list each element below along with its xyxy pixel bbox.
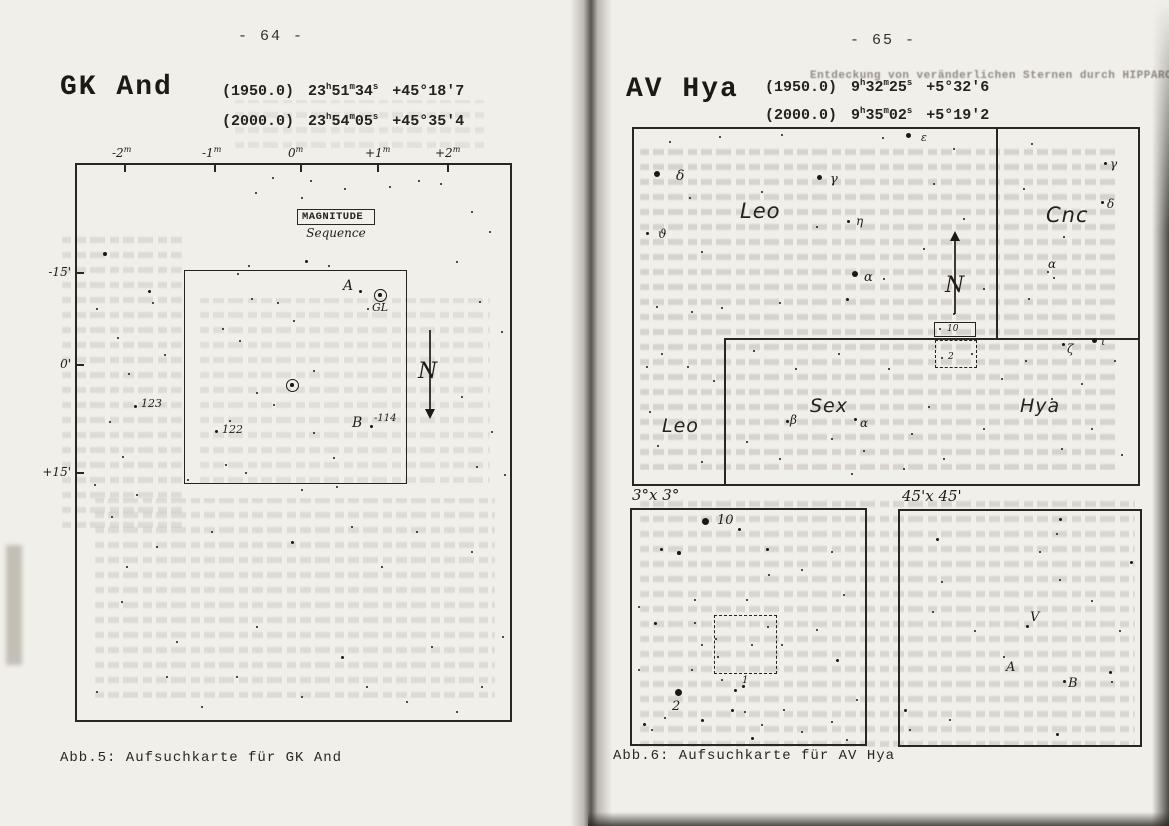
star-dot: [1056, 533, 1058, 535]
star-label: B: [1068, 677, 1078, 690]
star-dot: [1028, 298, 1030, 300]
star-dot: [128, 373, 130, 375]
star-dot: [148, 290, 151, 293]
star-dot: [936, 538, 939, 541]
star-dot: [1109, 671, 1112, 674]
star-dot: [156, 546, 158, 548]
star-dot: [943, 458, 945, 460]
star-dot: [801, 731, 803, 733]
star-dot: [694, 622, 696, 624]
star-dot: [109, 421, 111, 423]
star-label: 10: [717, 514, 734, 527]
star-dot: [301, 197, 303, 199]
star-dot: [738, 528, 741, 531]
star-dot: [225, 464, 227, 466]
star-dot: [1061, 448, 1063, 450]
star-dot: [691, 311, 693, 313]
gk-and-coords-2000: (2000.0)23h54m05s+45°35'4: [222, 112, 464, 130]
av-hya-finder-chart-wide: LeoCncSexHyaLeoδγηϑαεγδαζιβα102N: [632, 127, 1140, 486]
scan-edge-right: [1152, 0, 1169, 826]
star-dot: [713, 380, 715, 382]
star-dot: [229, 420, 231, 422]
star-dot: [746, 599, 748, 601]
magnitude-sequence-legend: MAGNITUDESequence: [297, 209, 375, 240]
star-dot: [418, 180, 420, 182]
star-dot: [1091, 600, 1093, 602]
star-label: δ: [676, 169, 684, 183]
star-dot: [256, 626, 258, 628]
epoch-label: (1950.0): [765, 79, 837, 96]
star-dot: [838, 353, 840, 355]
right-page-number: - 65 -: [850, 32, 916, 49]
av-hya-finder-chart-45min: VAB45'x 45': [898, 509, 1142, 747]
star-dot: [291, 541, 294, 544]
axis-tick: [214, 165, 216, 172]
star-dot: [136, 494, 138, 496]
star-dot: [744, 711, 746, 713]
star-dot: [471, 551, 473, 553]
star-label: 10: [947, 325, 958, 334]
star-dot: [1051, 398, 1053, 400]
legend-magnitude-box: MAGNITUDE: [297, 209, 375, 225]
star-dot: [646, 366, 648, 368]
star-label: ζ: [1067, 343, 1074, 355]
star-dot: [166, 676, 168, 678]
star-dot: [761, 191, 763, 193]
star-label: γ: [830, 173, 838, 186]
star-dot: [481, 686, 483, 688]
star-dot: [836, 659, 839, 662]
star-label: 122: [222, 424, 243, 435]
north-label: N: [418, 361, 437, 383]
star-dot: [1101, 201, 1104, 204]
star-dot: [1023, 188, 1025, 190]
star-dot: [272, 177, 274, 179]
star-dot: [715, 638, 717, 640]
star-dot: [96, 691, 98, 693]
star-dot: [846, 739, 848, 741]
ra-value: 9h32m25s: [851, 79, 912, 96]
star-dot: [731, 709, 734, 712]
star-dot: [831, 438, 833, 440]
star-dot: [1039, 551, 1041, 553]
star-dot: [1056, 733, 1059, 736]
star-dot: [1003, 656, 1006, 659]
star-dot: [328, 265, 330, 267]
star-dot: [638, 606, 640, 608]
star-dot: [717, 656, 719, 658]
star-dot: [721, 307, 723, 309]
star-dot: [1063, 236, 1065, 238]
star-dot: [939, 328, 942, 331]
star-dot: [121, 601, 123, 603]
north-arrow: [944, 231, 966, 314]
star-dot: [1059, 518, 1062, 521]
star-dot: [176, 641, 178, 643]
star-dot: [702, 518, 709, 525]
star-dot: [502, 636, 504, 638]
star-dot: [1130, 561, 1133, 564]
star-label: 123: [141, 398, 162, 409]
star-dot: [675, 689, 682, 696]
star-dot: [1026, 625, 1029, 628]
star-dot: [248, 265, 250, 267]
star-dot: [795, 368, 797, 370]
star-dot: [768, 574, 770, 576]
star-dot: [1091, 428, 1093, 430]
star-label: A: [1006, 661, 1015, 674]
star-dot: [187, 479, 189, 481]
star-label: η: [856, 215, 863, 227]
field-box-dashed: [714, 615, 777, 674]
star-dot: [1111, 681, 1113, 683]
star-dot: [245, 472, 247, 474]
star-dot: [336, 486, 338, 488]
star-dot: [909, 729, 911, 731]
star-dot: [801, 569, 803, 571]
star-dot: [783, 709, 785, 711]
star-dot: [701, 719, 704, 722]
star-dot: [366, 686, 368, 688]
north-label: N: [945, 275, 964, 297]
axis-tick: [377, 165, 379, 172]
star-dot: [431, 646, 433, 648]
gk-and-finder-chart: AGL123122B-114-2m-1m0m+1m+2m-15'0'+15'MA…: [75, 163, 512, 722]
star-dot: [273, 404, 275, 406]
av-hya-coords-2000: (2000.0)9h35m02s+5°19'2: [765, 106, 989, 124]
star-label: 2: [948, 353, 954, 362]
star-dot: [301, 696, 303, 698]
star-dot: [416, 531, 418, 533]
star-dot: [164, 354, 166, 356]
star-dot: [293, 320, 295, 322]
star-dot: [660, 548, 663, 551]
star-dot: [689, 197, 691, 199]
star-dot: [701, 461, 703, 463]
star-dot: [974, 630, 976, 632]
star-dot: [471, 211, 473, 213]
star-dot: [211, 531, 213, 533]
av-hya-caption: Abb.6: Aufsuchkarte für AV Hya: [613, 748, 895, 764]
star-dot: [256, 392, 258, 394]
axis-tick: [300, 165, 302, 172]
star-dot: [351, 526, 353, 528]
field-box: [934, 322, 976, 337]
star-label: A: [343, 279, 353, 293]
star-dot: [479, 301, 481, 303]
star-dot: [766, 548, 769, 551]
star-label: δ: [1107, 198, 1114, 210]
axis-tick: [447, 165, 449, 172]
star-dot: [904, 709, 907, 712]
star-dot: [746, 441, 748, 443]
star-dot: [888, 368, 890, 370]
star-dot: [237, 273, 239, 275]
star-dot: [94, 484, 96, 486]
legend-sequence-label: Sequence: [297, 226, 375, 240]
star-label: α: [864, 271, 873, 284]
star-label: 2: [672, 700, 680, 713]
star-label: V: [1030, 611, 1039, 624]
star-dot: [1063, 680, 1066, 683]
star-dot: [983, 428, 985, 430]
star-dot: [734, 689, 737, 692]
star-dot: [742, 685, 745, 688]
star-dot: [491, 431, 493, 433]
axis-tick: [77, 272, 84, 274]
star-dot: [201, 706, 203, 708]
star-dot: [786, 420, 789, 423]
star-dot: [933, 183, 935, 185]
star-dot: [313, 432, 315, 434]
star-dot: [721, 679, 723, 681]
star-dot: [501, 331, 503, 333]
star-dot: [504, 474, 506, 476]
star-label: Sex: [810, 397, 848, 416]
av-hya-finder-chart-3deg: 10213°x 3°: [630, 508, 867, 746]
star-dot: [1059, 579, 1061, 581]
star-dot: [305, 260, 308, 263]
star-label: α: [860, 417, 868, 429]
star-dot: [953, 313, 955, 315]
star-dot: [923, 248, 925, 250]
star-dot: [701, 644, 703, 646]
star-dot: [669, 141, 671, 143]
star-dot: [461, 396, 463, 398]
star-dot: [687, 366, 689, 368]
star-dot: [654, 622, 657, 625]
star-dot: [456, 261, 458, 263]
star-dot: [767, 626, 769, 628]
star-dot: [816, 629, 818, 631]
star-dot: [863, 450, 865, 452]
circled-star: [286, 379, 299, 392]
field-box-dashed: [935, 340, 977, 368]
star-dot: [381, 566, 383, 568]
star-dot: [310, 180, 312, 182]
star-dot: [949, 719, 951, 721]
star-dot: [779, 458, 781, 460]
constellation-boundary-line: [724, 338, 1138, 340]
star-dot: [1053, 277, 1055, 279]
star-dot: [932, 611, 934, 613]
star-dot: [215, 430, 218, 433]
star-dot: [664, 717, 666, 719]
star-dot: [643, 723, 646, 726]
star-dot: [781, 134, 783, 136]
dec-value: +5°32'6: [926, 79, 989, 96]
star-dot: [406, 701, 408, 703]
star-dot: [333, 457, 335, 459]
star-dot: [1119, 630, 1121, 632]
star-dot: [846, 298, 849, 301]
axis-tick: [77, 472, 84, 474]
star-dot: [1121, 454, 1123, 456]
star-dot: [239, 340, 241, 342]
star-dot: [983, 288, 985, 290]
star-dot: [677, 551, 681, 555]
star-label: α: [1048, 258, 1056, 270]
star-dot: [649, 411, 651, 413]
star-dot: [344, 188, 346, 190]
star-dot: [753, 350, 755, 352]
star-dot: [657, 445, 659, 447]
north-arrow: [419, 330, 441, 419]
epoch-label: (2000.0): [222, 113, 294, 130]
axis-tick: [77, 364, 84, 366]
star-dot: [367, 308, 369, 310]
ra-value: 23h54m05s: [308, 113, 378, 130]
star-dot: [103, 252, 107, 256]
axis-tick-label: -2m: [112, 146, 131, 159]
axis-tick: [124, 165, 126, 172]
axis-tick-label: -1m: [202, 146, 221, 159]
star-dot: [1114, 360, 1116, 362]
star-dot: [781, 644, 783, 646]
star-dot: [701, 251, 703, 253]
star-dot: [883, 278, 885, 280]
star-dot: [779, 302, 781, 304]
star-dot: [1092, 338, 1097, 343]
epoch-label: (1950.0): [222, 83, 294, 100]
star-dot: [222, 328, 224, 330]
star-dot: [1062, 343, 1065, 346]
star-dot: [694, 599, 696, 601]
star-label: ε: [921, 132, 927, 143]
star-label: 1: [742, 676, 748, 686]
star-dot: [117, 337, 119, 339]
gk-and-title: GK And: [60, 72, 173, 103]
star-dot: [761, 724, 763, 726]
star-dot: [911, 433, 913, 435]
scanned-book-spread: Entdeckung von veränderlichen Sternen du…: [0, 0, 1169, 826]
star-dot: [656, 306, 658, 308]
star-dot: [882, 137, 884, 139]
star-dot: [236, 676, 238, 678]
constellation-boundary-line: [724, 338, 726, 484]
star-dot: [646, 232, 649, 235]
ra-value: 9h35m02s: [851, 107, 912, 124]
star-dot: [751, 737, 754, 740]
star-dot: [152, 302, 154, 304]
star-label: Hya: [1020, 397, 1060, 416]
star-label: Leo: [662, 417, 699, 436]
star-dot: [341, 656, 344, 659]
scan-smudge: [6, 545, 22, 665]
star-dot: [476, 466, 478, 468]
star-dot: [831, 551, 833, 553]
left-page-number: - 64 -: [238, 28, 304, 45]
star-dot: [817, 175, 822, 180]
av-hya-title: AV Hya: [626, 74, 739, 105]
star-dot: [903, 468, 905, 470]
star-dot: [638, 669, 640, 671]
star-dot: [854, 418, 857, 421]
star-dot: [843, 594, 845, 596]
star-dot: [906, 133, 911, 138]
star-dot: [440, 183, 442, 185]
star-dot: [359, 290, 362, 293]
star-dot: [134, 405, 137, 408]
star-dot: [389, 186, 391, 188]
circled-star-core: [290, 383, 294, 387]
star-dot: [122, 456, 124, 458]
star-label: ϑ: [658, 228, 667, 240]
star-dot: [489, 231, 491, 233]
star-label: β: [790, 414, 797, 426]
star-dot: [719, 136, 721, 138]
star-dot: [251, 298, 253, 300]
star-dot: [370, 425, 373, 428]
star-dot: [654, 171, 660, 177]
star-dot: [651, 729, 653, 731]
star-dot: [847, 220, 850, 223]
star-dot: [928, 406, 930, 408]
star-dot: [1104, 162, 1107, 165]
star-dot: [301, 489, 303, 491]
star-dot: [96, 308, 98, 310]
gk-and-caption: Abb.5: Aufsuchkarte für GK And: [60, 750, 342, 766]
scan-edge-bottom: [588, 812, 1169, 826]
circled-star: [374, 289, 387, 302]
circled-star-core: [378, 293, 382, 297]
book-gutter-shadow: [570, 0, 612, 826]
star-dot: [941, 581, 943, 583]
dec-value: +45°35'4: [392, 113, 464, 130]
star-dot: [1081, 383, 1083, 385]
av-hya-coords-1950: (1950.0)9h32m25s+5°32'6: [765, 78, 989, 96]
star-dot: [1025, 360, 1027, 362]
star-dot: [971, 353, 973, 355]
star-dot: [111, 516, 113, 518]
dec-value: +5°19'2: [926, 107, 989, 124]
star-dot: [691, 669, 693, 671]
star-dot: [1031, 143, 1033, 145]
star-dot: [851, 473, 853, 475]
star-label: Cnc: [1046, 205, 1089, 226]
star-dot: [255, 192, 257, 194]
star-label: γ: [1110, 158, 1117, 170]
constellation-boundary-line: [996, 129, 998, 338]
star-dot: [953, 148, 955, 150]
star-dot: [661, 353, 663, 355]
star-label: GL: [372, 302, 388, 313]
star-dot: [1047, 271, 1049, 273]
star-dot: [831, 721, 833, 723]
star-label: ι: [1101, 336, 1105, 347]
star-dot: [963, 218, 965, 220]
star-dot: [816, 226, 818, 228]
star-label: -114: [374, 414, 396, 424]
gk-and-coords-1950: (1950.0)23h51m34s+45°18'7: [222, 82, 464, 100]
dec-value: +45°18'7: [392, 83, 464, 100]
star-label: B: [352, 416, 362, 430]
star-dot: [941, 357, 944, 360]
star-dot: [277, 302, 279, 304]
star-dot: [751, 644, 753, 646]
star-label: Leo: [740, 201, 780, 222]
star-dot: [456, 711, 458, 713]
epoch-label: (2000.0): [765, 107, 837, 124]
star-dot: [852, 271, 858, 277]
star-dot: [126, 566, 128, 568]
star-dot: [313, 370, 315, 372]
star-dot: [856, 699, 858, 701]
field-box: [184, 270, 407, 484]
star-dot: [1001, 378, 1003, 380]
ra-value: 23h51m34s: [308, 83, 378, 100]
